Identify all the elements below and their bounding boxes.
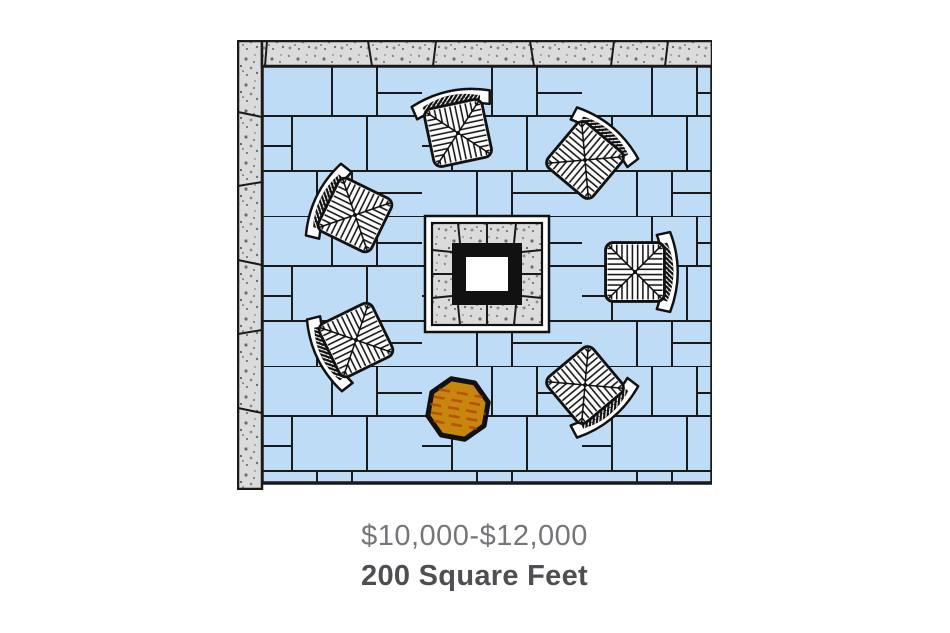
caption: $10,000-$12,000 200 Square Feet xyxy=(237,519,712,594)
concrete-wall-left xyxy=(238,41,262,489)
fire-pit-bowl xyxy=(466,257,508,291)
patio-plan xyxy=(237,40,712,490)
wicker-chair xyxy=(606,232,678,312)
concrete-wall-top xyxy=(262,41,712,66)
fire-pit xyxy=(425,216,549,332)
price-range-text: $10,000-$12,000 xyxy=(237,519,712,554)
patio-plan-canvas xyxy=(237,40,712,490)
square-feet-text: 200 Square Feet xyxy=(237,558,712,594)
